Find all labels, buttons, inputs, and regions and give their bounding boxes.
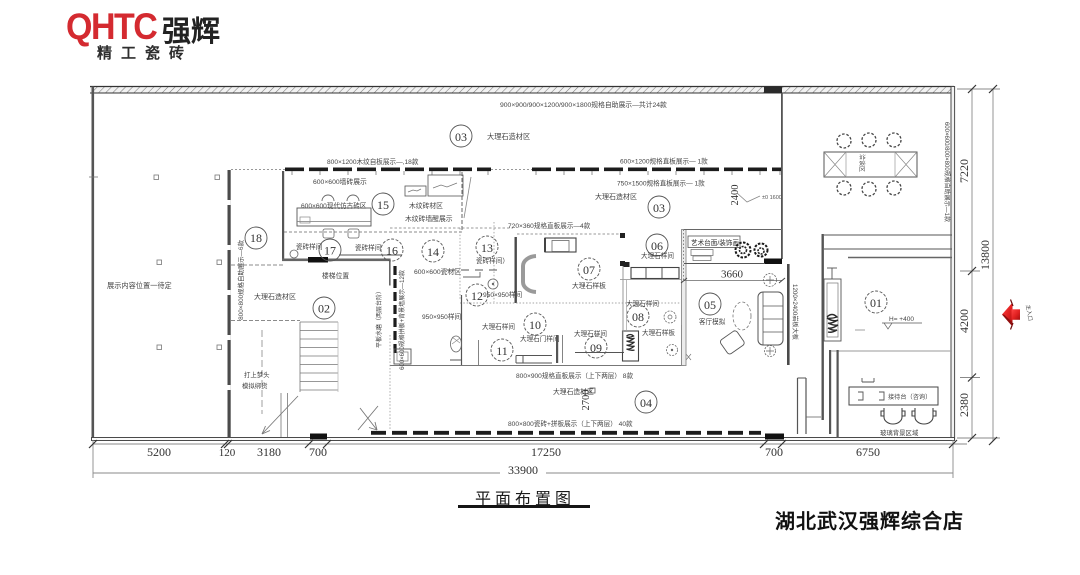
svg-text:±0 1600: ±0 1600 — [762, 195, 782, 201]
svg-text:800×1200木纹自板展示—,18款: 800×1200木纹自板展示—,18款 — [327, 157, 419, 166]
svg-text:大理石样板: 大理石样板 — [642, 328, 675, 337]
svg-text:2380: 2380 — [957, 393, 971, 417]
svg-text:03: 03 — [653, 201, 665, 215]
svg-text:7220: 7220 — [957, 159, 971, 183]
svg-text:03: 03 — [455, 130, 467, 144]
svg-text:950×950样间: 950×950样间 — [422, 312, 461, 321]
svg-text:瓷砖样间: 瓷砖样间 — [355, 243, 382, 252]
svg-text:3180: 3180 — [257, 445, 281, 459]
svg-text:600×600墙砖展示: 600×600墙砖展示 — [313, 177, 367, 186]
svg-text:05: 05 — [704, 298, 716, 312]
svg-text:3660: 3660 — [721, 269, 744, 281]
svg-text:06: 06 — [651, 239, 663, 253]
svg-text:6750: 6750 — [856, 445, 880, 459]
svg-text:950×950样间: 950×950样间 — [483, 290, 522, 299]
svg-text:600×600瓷材区: 600×600瓷材区 — [414, 267, 461, 276]
svg-text:主入口: 主入口 — [1024, 304, 1035, 322]
svg-text:客厅模拟: 客厅模拟 — [699, 317, 726, 326]
svg-text:900×900/900×1200/900×1800规格自助展: 900×900/900×1200/900×1800规格自助展示—共计24款 — [500, 100, 667, 109]
svg-text:12: 12 — [471, 289, 483, 303]
svg-text:大理石样板: 大理石样板 — [572, 281, 606, 290]
svg-text:02: 02 — [318, 302, 330, 316]
svg-text:瓷砖样间）: 瓷砖样间） — [476, 256, 509, 265]
svg-text:07: 07 — [583, 263, 595, 277]
svg-text:大理石造材区: 大理石造材区 — [487, 132, 530, 141]
svg-text:800×800瓷砖+拼板展示（上下两层） 40款: 800×800瓷砖+拼板展示（上下两层） 40款 — [508, 419, 633, 428]
svg-text:接待台（咨询）: 接待台（咨询） — [888, 393, 931, 401]
svg-text:33900: 33900 — [508, 463, 538, 477]
svg-text:艺术台面/装饰画: 艺术台面/装饰画 — [691, 238, 739, 247]
svg-text:大理石样间: 大理石样间 — [574, 329, 607, 338]
svg-text:1200×2400岩板大板: 1200×2400岩板大板 — [791, 284, 799, 340]
svg-text:01: 01 — [870, 296, 882, 310]
svg-text:玻璃背景区域: 玻璃背景区域 — [880, 428, 919, 437]
svg-text:08: 08 — [632, 310, 644, 324]
svg-text:2700: 2700 — [581, 390, 592, 411]
svg-text:木纹砖墙醒展示: 木纹砖墙醒展示 — [405, 214, 453, 223]
svg-text:13: 13 — [481, 241, 493, 255]
svg-text:13800: 13800 — [978, 240, 992, 270]
svg-text:600×1200规格直板展示— 1款: 600×1200规格直板展示— 1款 — [620, 157, 708, 166]
svg-text:15: 15 — [377, 198, 389, 212]
svg-text:大理石门样间: 大理石门样间 — [520, 334, 560, 343]
svg-text:11: 11 — [496, 344, 508, 358]
svg-text:展示内容位置一待定: 展示内容位置一待定 — [107, 281, 172, 290]
svg-text:750×1500规格直板展示— 1款: 750×1500规格直板展示— 1款 — [617, 179, 705, 188]
svg-text:10: 10 — [529, 318, 541, 332]
svg-text:14: 14 — [427, 245, 439, 259]
svg-text:打上梦头: 打上梦头 — [244, 370, 270, 379]
svg-text:平板水磨（两层台阶）: 平板水磨（两层台阶） — [375, 288, 383, 348]
svg-text:大理石样间: 大理石样间 — [641, 251, 674, 260]
svg-text:04: 04 — [640, 396, 652, 410]
svg-text:大理石造材区: 大理石造材区 — [595, 192, 637, 201]
svg-text:木纹砖材区: 木纹砖材区 — [409, 201, 443, 210]
svg-text:600×600/800×800规格自助展示—1款: 600×600/800×800规格自助展示—1款 — [943, 122, 951, 222]
svg-text:洽谈区: 洽谈区 — [858, 154, 866, 172]
svg-text:17250: 17250 — [531, 445, 561, 459]
svg-text:大理石样间: 大理石样间 — [482, 322, 515, 331]
svg-text:大理石样间: 大理石样间 — [626, 299, 659, 308]
svg-text:4200: 4200 — [957, 309, 971, 333]
svg-text:楼梯位置: 楼梯位置 — [322, 271, 349, 280]
svg-text:700: 700 — [309, 445, 327, 459]
svg-text:5200: 5200 — [147, 445, 171, 459]
svg-text:H= +400: H= +400 — [889, 316, 914, 323]
svg-text:大理石造材区: 大理石造材区 — [254, 292, 296, 301]
svg-text:17: 17 — [324, 244, 336, 258]
svg-text:600×600规格拼板+背景墙展示—12款: 600×600规格拼板+背景墙展示—12款 — [398, 270, 406, 370]
svg-text:720×360规格直板展示—4款: 720×360规格直板展示—4款 — [508, 221, 591, 230]
svg-text:18: 18 — [250, 231, 262, 245]
svg-text:800×800规格自助展示—6款: 800×800规格自助展示—6款 — [236, 240, 245, 320]
svg-text:模拟绑货: 模拟绑货 — [242, 381, 268, 390]
svg-text:800×900规格直板展示（上下两层） 8款: 800×900规格直板展示（上下两层） 8款 — [516, 371, 633, 380]
svg-text:120: 120 — [219, 447, 236, 459]
svg-text:600×600现代仿古砖区: 600×600现代仿古砖区 — [301, 201, 367, 210]
svg-text:700: 700 — [765, 445, 783, 459]
